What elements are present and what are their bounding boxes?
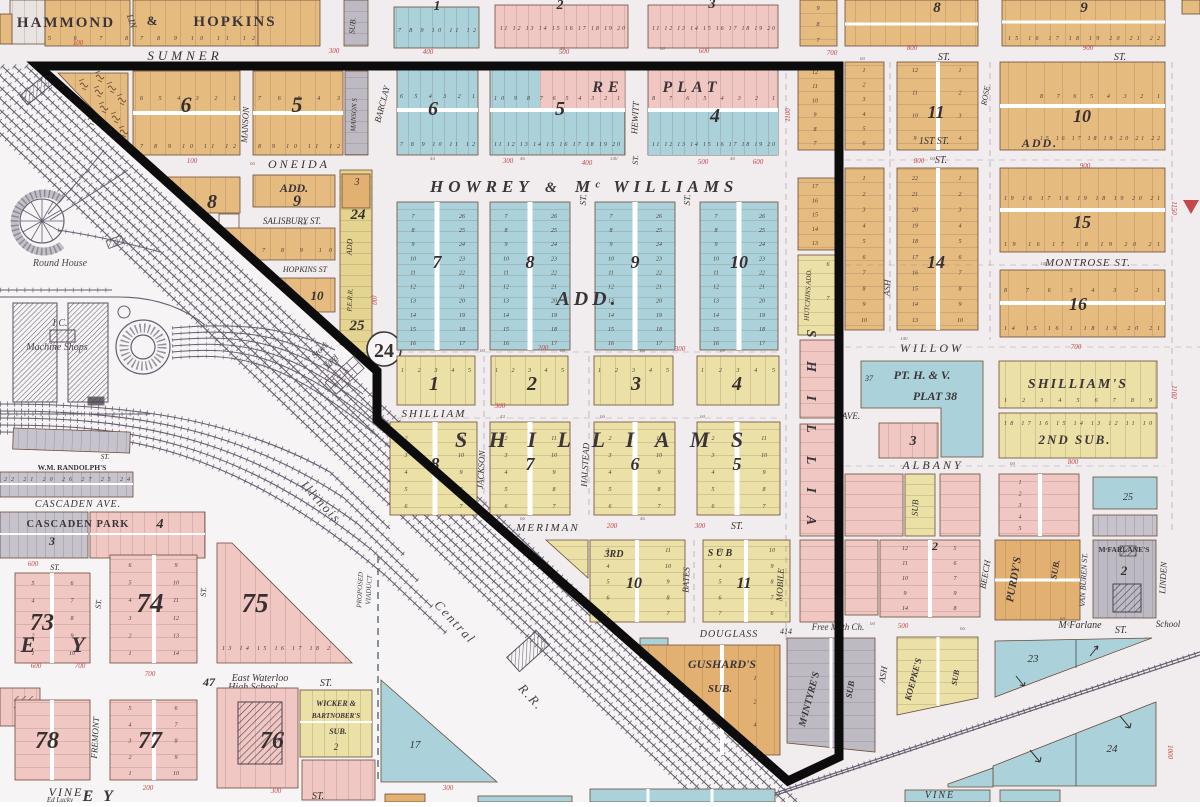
svg-text:140: 140 <box>610 157 618 162</box>
svg-text:3: 3 <box>404 453 408 459</box>
svg-text:16: 16 <box>1069 294 1087 314</box>
svg-text:60: 60 <box>930 157 936 162</box>
svg-text:60: 60 <box>860 57 866 62</box>
svg-text:WICKER &: WICKER & <box>316 699 357 708</box>
svg-text:12: 12 <box>503 285 509 291</box>
svg-text:60: 60 <box>1010 462 1016 467</box>
svg-text:74: 74 <box>137 588 164 618</box>
svg-text:46: 46 <box>560 47 566 52</box>
svg-text:E: E <box>20 632 36 657</box>
svg-text:700: 700 <box>75 662 86 670</box>
svg-text:ST.: ST. <box>731 521 743 532</box>
svg-text:24: 24 <box>551 241 557 248</box>
svg-text:14: 14 <box>173 650 179 657</box>
svg-text:8: 8 <box>933 0 941 16</box>
svg-text:10: 10 <box>713 256 719 262</box>
svg-text:10: 10 <box>957 318 963 324</box>
svg-text:15 16 17 18 19 20 21 22: 15 16 17 18 19 20 21 22 <box>1008 36 1160 42</box>
svg-text:15: 15 <box>503 327 509 333</box>
svg-text:400: 400 <box>582 159 593 167</box>
svg-text:11: 11 <box>503 270 509 276</box>
svg-text:16: 16 <box>410 341 416 347</box>
svg-text:6: 6 <box>71 581 74 587</box>
svg-text:6: 6 <box>959 255 962 261</box>
svg-text:5: 5 <box>405 487 408 493</box>
svg-text:2: 2 <box>959 91 962 97</box>
svg-text:21: 21 <box>912 192 918 198</box>
svg-text:8 7 6 5 4 3 2 1: 8 7 6 5 4 3 2 1 <box>1040 93 1160 100</box>
svg-text:6: 6 <box>428 98 438 120</box>
svg-text:66: 66 <box>600 415 606 420</box>
svg-text:11: 11 <box>902 561 908 567</box>
svg-text:66: 66 <box>520 517 526 522</box>
svg-text:SUMNER: SUMNER <box>147 48 222 63</box>
svg-text:6: 6 <box>405 504 408 510</box>
svg-text:S H I L L I A M S: S H I L L I A M S <box>455 427 751 452</box>
svg-text:17: 17 <box>759 341 766 347</box>
svg-text:5: 5 <box>863 239 866 245</box>
svg-text:1: 1 <box>863 68 866 74</box>
svg-text:BATES: BATES <box>680 566 691 593</box>
svg-text:11: 11 <box>410 270 416 276</box>
svg-text:8: 8 <box>814 127 817 133</box>
svg-text:13: 13 <box>812 241 818 247</box>
svg-text:MᶜFARLANE'S: MᶜFARLANE'S <box>1099 545 1150 554</box>
svg-text:16: 16 <box>503 341 509 347</box>
svg-text:SHILLIAM'S: SHILLIAM'S <box>1028 377 1128 392</box>
svg-text:23: 23 <box>759 256 765 262</box>
svg-text:6: 6 <box>505 504 508 510</box>
svg-text:HEWITT: HEWITT <box>629 100 641 135</box>
svg-text:15: 15 <box>713 327 719 333</box>
svg-text:5: 5 <box>733 454 742 474</box>
svg-text:11 12 13 14 15 16 17 18 19 20: 11 12 13 14 15 16 17 18 19 20 <box>494 141 620 148</box>
svg-text:1100: 1100 <box>784 108 792 122</box>
svg-text:15: 15 <box>912 286 918 292</box>
svg-text:5: 5 <box>555 98 565 120</box>
svg-text:9: 9 <box>763 470 766 476</box>
svg-text:9: 9 <box>667 580 670 586</box>
svg-text:13: 13 <box>410 299 416 305</box>
svg-text:600: 600 <box>753 158 764 166</box>
svg-text:5: 5 <box>129 706 132 712</box>
svg-text:10: 10 <box>861 318 867 324</box>
svg-text:11: 11 <box>761 436 767 442</box>
svg-text:8: 8 <box>763 487 766 493</box>
svg-text:13: 13 <box>503 299 509 305</box>
svg-text:6: 6 <box>631 454 640 474</box>
svg-text:6: 6 <box>609 504 612 510</box>
svg-text:46: 46 <box>520 157 526 162</box>
svg-text:8: 8 <box>553 487 556 493</box>
svg-text:4: 4 <box>1019 514 1022 521</box>
svg-text:24: 24 <box>374 340 394 362</box>
svg-text:14: 14 <box>410 312 416 319</box>
svg-text:12: 12 <box>912 68 918 74</box>
svg-text:13: 13 <box>912 318 918 324</box>
svg-text:2: 2 <box>556 0 564 13</box>
svg-text:12: 12 <box>410 285 416 291</box>
svg-text:100: 100 <box>73 39 84 47</box>
svg-text:1: 1 <box>863 176 866 182</box>
svg-text:10: 10 <box>665 564 671 570</box>
svg-text:8: 8 <box>954 606 957 612</box>
svg-text:12: 12 <box>173 616 179 622</box>
svg-text:25: 25 <box>656 228 662 234</box>
svg-text:11: 11 <box>927 102 944 122</box>
svg-text:18: 18 <box>656 327 662 333</box>
svg-text:46: 46 <box>640 517 646 522</box>
svg-text:10: 10 <box>912 113 918 119</box>
svg-text:12: 12 <box>713 285 719 291</box>
svg-text:22: 22 <box>656 270 662 276</box>
svg-text:2: 2 <box>129 755 132 761</box>
svg-text:22: 22 <box>912 176 918 182</box>
svg-text:11 12 13 14 15 16 17 18 19 20: 11 12 13 14 15 16 17 18 19 20 <box>500 25 625 32</box>
svg-text:3: 3 <box>1018 503 1022 509</box>
svg-text:9: 9 <box>460 470 463 476</box>
svg-text:10: 10 <box>812 98 818 104</box>
svg-text:26: 26 <box>551 214 557 220</box>
svg-text:22: 22 <box>551 270 557 276</box>
svg-text:3: 3 <box>128 616 132 622</box>
svg-text:10: 10 <box>458 453 464 459</box>
svg-text:4: 4 <box>129 597 132 604</box>
svg-text:4: 4 <box>754 722 757 729</box>
svg-text:10: 10 <box>626 575 642 592</box>
svg-text:60: 60 <box>700 415 706 420</box>
svg-text:S U B: S U B <box>708 548 733 559</box>
svg-text:22: 22 <box>459 270 465 276</box>
svg-text:25: 25 <box>349 318 366 334</box>
svg-text:14: 14 <box>812 226 818 233</box>
svg-text:300: 300 <box>694 522 706 530</box>
svg-text:23: 23 <box>1028 653 1040 665</box>
svg-text:5: 5 <box>32 581 35 587</box>
svg-text:140: 140 <box>1040 262 1048 267</box>
svg-text:Y: Y <box>103 788 114 802</box>
svg-text:ST.: ST. <box>50 563 60 572</box>
svg-text:2ND SUB.: 2ND SUB. <box>1037 432 1111 447</box>
svg-text:17: 17 <box>459 341 466 347</box>
svg-text:6: 6 <box>863 255 866 261</box>
svg-text:26: 26 <box>656 214 662 220</box>
svg-text:10: 10 <box>902 576 908 582</box>
svg-text:4: 4 <box>731 373 742 395</box>
svg-text:School: School <box>1156 619 1181 629</box>
svg-text:RE: RE <box>591 79 623 96</box>
svg-text:10: 10 <box>761 453 767 459</box>
svg-text:ONEIDA: ONEIDA <box>268 157 330 171</box>
svg-text:8: 8 <box>175 739 178 745</box>
svg-text:ST.: ST. <box>938 52 950 63</box>
svg-text:5: 5 <box>505 487 508 493</box>
svg-text:24: 24 <box>459 241 465 248</box>
svg-text:44: 44 <box>500 415 506 420</box>
svg-text:1150: 1150 <box>1170 201 1178 215</box>
svg-text:3: 3 <box>630 373 641 395</box>
svg-text:9: 9 <box>293 193 301 210</box>
svg-text:66: 66 <box>640 349 646 354</box>
svg-text:CASCADEN PARK: CASCADEN PARK <box>27 519 130 530</box>
svg-text:3: 3 <box>354 177 360 188</box>
svg-text:4: 4 <box>719 563 722 570</box>
svg-text:60: 60 <box>1060 617 1066 622</box>
svg-text:9: 9 <box>814 113 817 119</box>
svg-text:3: 3 <box>958 208 962 214</box>
svg-text:10: 10 <box>769 548 775 554</box>
svg-text:26: 26 <box>759 214 765 220</box>
svg-text:16: 16 <box>912 271 918 277</box>
svg-text:2: 2 <box>526 373 537 395</box>
svg-text:24: 24 <box>759 241 765 248</box>
svg-text:300: 300 <box>270 787 282 795</box>
svg-text:11: 11 <box>665 548 671 554</box>
svg-text:3: 3 <box>608 453 612 459</box>
svg-text:3: 3 <box>958 113 962 119</box>
svg-text:ST.: ST. <box>1114 52 1126 63</box>
svg-text:SALISBURY ST.: SALISBURY ST. <box>263 216 321 226</box>
svg-text:20: 20 <box>759 299 765 305</box>
svg-text:Ed Lucky: Ed Lucky <box>46 796 74 802</box>
svg-text:20: 20 <box>656 299 662 305</box>
svg-text:4: 4 <box>405 469 408 476</box>
svg-text:18: 18 <box>551 327 557 333</box>
svg-text:8: 8 <box>412 228 415 234</box>
svg-text:4: 4 <box>709 105 720 127</box>
svg-text:14: 14 <box>902 605 908 612</box>
svg-text:16: 16 <box>812 198 818 204</box>
svg-text:400: 400 <box>423 48 434 56</box>
svg-text:200: 200 <box>607 522 618 530</box>
svg-text:9: 9 <box>771 564 774 570</box>
svg-text:9: 9 <box>610 242 613 248</box>
svg-text:JACKSON: JACKSON <box>475 449 487 489</box>
svg-text:11: 11 <box>713 270 719 276</box>
svg-text:25: 25 <box>459 228 465 234</box>
svg-text:5: 5 <box>292 92 303 117</box>
svg-text:7: 7 <box>526 454 536 474</box>
svg-text:4: 4 <box>863 222 866 229</box>
svg-text:3: 3 <box>128 739 132 745</box>
svg-text:15: 15 <box>410 327 416 333</box>
svg-text:8: 8 <box>959 286 962 292</box>
svg-text:9: 9 <box>631 252 640 272</box>
svg-text:60: 60 <box>560 349 566 354</box>
svg-text:4: 4 <box>156 517 164 532</box>
svg-text:4: 4 <box>712 469 715 476</box>
svg-text:19: 19 <box>551 313 557 319</box>
svg-text:9: 9 <box>863 302 866 308</box>
svg-text:20: 20 <box>459 299 465 305</box>
svg-text:ST.: ST. <box>935 155 947 166</box>
svg-text:75: 75 <box>242 588 269 618</box>
svg-text:7: 7 <box>433 252 443 272</box>
svg-text:SUB.: SUB. <box>347 17 357 34</box>
svg-text:Machine Shops: Machine Shops <box>25 342 87 353</box>
svg-text:2: 2 <box>754 699 757 705</box>
svg-text:17: 17 <box>656 341 663 347</box>
svg-text:9: 9 <box>817 6 820 12</box>
svg-text:1: 1 <box>434 0 441 14</box>
svg-text:6: 6 <box>129 563 132 569</box>
svg-text:2: 2 <box>1019 492 1022 498</box>
svg-text:6: 6 <box>712 504 715 510</box>
svg-text:200: 200 <box>143 784 154 792</box>
svg-text:9: 9 <box>715 242 718 248</box>
svg-text:17: 17 <box>551 341 558 347</box>
svg-text:10: 10 <box>410 256 416 262</box>
svg-text:CASCADEN AVE.: CASCADEN AVE. <box>35 499 121 510</box>
svg-text:13: 13 <box>173 633 179 639</box>
svg-text:W.M. RANDOLPH'S: W.M. RANDOLPH'S <box>38 463 107 472</box>
svg-text:6: 6 <box>863 141 866 147</box>
svg-text:600: 600 <box>31 662 42 670</box>
svg-text:ST.: ST. <box>682 194 693 206</box>
svg-text:3: 3 <box>862 208 866 214</box>
svg-text:60: 60 <box>870 622 876 627</box>
svg-text:ST.: ST. <box>101 453 110 461</box>
svg-text:ALBANY: ALBANY <box>901 458 963 472</box>
svg-text:14: 14 <box>912 301 918 308</box>
svg-text:47: 47 <box>202 675 216 689</box>
svg-text:18: 18 <box>459 327 465 333</box>
svg-text:6: 6 <box>175 706 178 712</box>
svg-text:9: 9 <box>954 591 957 597</box>
svg-text:60: 60 <box>720 349 726 354</box>
svg-text:17: 17 <box>410 739 422 751</box>
svg-text:15: 15 <box>608 327 614 333</box>
svg-text:1: 1 <box>754 676 757 682</box>
svg-text:14: 14 <box>927 252 945 272</box>
svg-text:ADD: ADD <box>345 238 355 256</box>
svg-text:MOBILE: MOBILE <box>774 568 786 603</box>
svg-text:1: 1 <box>429 373 439 395</box>
svg-text:10: 10 <box>656 453 662 459</box>
svg-text:8: 8 <box>610 228 613 234</box>
svg-text:800: 800 <box>914 157 925 165</box>
svg-text:BARTNOBER'S: BARTNOBER'S <box>311 712 360 720</box>
svg-text:1: 1 <box>129 771 132 777</box>
svg-text:17: 17 <box>912 255 919 261</box>
svg-text:5: 5 <box>719 580 722 586</box>
svg-text:10: 10 <box>311 288 325 303</box>
svg-text:6: 6 <box>954 561 957 567</box>
svg-text:3: 3 <box>48 534 55 548</box>
svg-text:700: 700 <box>145 670 156 678</box>
svg-text:21: 21 <box>656 285 662 291</box>
svg-text:ST.: ST. <box>320 678 332 689</box>
svg-text:E: E <box>82 788 94 802</box>
svg-text:ASH: ASH <box>882 279 893 297</box>
svg-text:8: 8 <box>505 228 508 234</box>
svg-text:10: 10 <box>1073 106 1091 126</box>
svg-text:1000: 1000 <box>1166 745 1174 760</box>
svg-text:21: 21 <box>759 285 765 291</box>
svg-text:(00: (00 <box>370 295 378 305</box>
svg-text:DOUGLASS: DOUGLASS <box>699 629 759 640</box>
svg-text:76: 76 <box>260 728 284 754</box>
svg-text:5: 5 <box>954 546 957 552</box>
svg-text:5: 5 <box>129 581 132 587</box>
svg-text:18: 18 <box>759 327 765 333</box>
svg-text:800: 800 <box>907 44 918 52</box>
svg-text:6: 6 <box>699 726 702 732</box>
svg-text:P.E.R.R.: P.E.R.R. <box>345 288 354 313</box>
svg-text:4: 4 <box>607 563 610 570</box>
svg-text:200: 200 <box>538 344 549 352</box>
svg-text:10: 10 <box>730 252 748 272</box>
svg-text:5: 5 <box>1019 526 1022 532</box>
svg-text:8: 8 <box>715 228 718 234</box>
svg-text:44: 44 <box>430 157 436 162</box>
svg-text:19: 19 <box>912 223 918 229</box>
svg-text:11: 11 <box>736 575 751 592</box>
svg-text:5: 5 <box>959 239 962 245</box>
svg-text:1100: 1100 <box>1170 385 1178 399</box>
svg-text:1: 1 <box>959 176 962 182</box>
svg-text:78: 78 <box>35 728 59 754</box>
svg-text:19: 19 <box>459 313 465 319</box>
svg-text:WILLOW: WILLOW <box>900 341 964 355</box>
svg-text:140: 140 <box>300 222 308 227</box>
svg-text:24: 24 <box>656 241 662 248</box>
svg-text:15: 15 <box>1073 212 1091 232</box>
svg-text:1: 1 <box>959 68 962 74</box>
svg-text:2: 2 <box>863 83 866 89</box>
svg-text:25: 25 <box>551 228 557 234</box>
svg-text:11 12 13 14 15 16 17 18 19 20: 11 12 13 14 15 16 17 18 19 20 <box>652 25 775 32</box>
svg-text:25: 25 <box>759 228 765 234</box>
svg-text:9: 9 <box>904 591 907 597</box>
svg-text:11: 11 <box>173 598 179 604</box>
svg-text:9: 9 <box>959 302 962 308</box>
svg-text:100: 100 <box>187 157 198 165</box>
svg-text:8: 8 <box>207 191 217 213</box>
svg-text:VINE: VINE <box>925 790 955 801</box>
svg-text:13: 13 <box>713 299 719 305</box>
svg-text:SUB.: SUB. <box>329 727 347 736</box>
svg-text:14: 14 <box>608 312 614 319</box>
svg-text:LINDEN: LINDEN <box>1157 561 1169 595</box>
svg-text:9: 9 <box>175 755 178 761</box>
svg-text:HOPKINS ST: HOPKINS ST <box>282 265 328 274</box>
svg-text:ADD.: ADD. <box>1021 136 1058 150</box>
svg-text:66: 66 <box>960 627 966 632</box>
svg-text:10: 10 <box>503 256 509 262</box>
svg-text:25: 25 <box>1123 492 1133 503</box>
svg-text:ST.: ST. <box>312 791 324 802</box>
svg-text:8: 8 <box>817 22 820 28</box>
svg-text:10: 10 <box>173 771 179 777</box>
svg-text:MERIMAN: MERIMAN <box>515 522 579 534</box>
svg-text:I.C.: I.C. <box>52 318 68 329</box>
svg-text:17: 17 <box>812 184 819 190</box>
svg-text:3: 3 <box>504 453 508 459</box>
svg-text:5: 5 <box>712 487 715 493</box>
svg-text:6: 6 <box>181 92 192 117</box>
svg-text:60: 60 <box>480 349 486 354</box>
svg-text:ST.: ST. <box>631 155 641 165</box>
svg-text:300: 300 <box>502 157 514 165</box>
svg-text:500: 500 <box>698 158 709 166</box>
svg-text:900: 900 <box>1083 44 1094 52</box>
svg-text:18: 18 <box>912 239 918 245</box>
svg-text:5: 5 <box>609 487 612 493</box>
svg-text:6: 6 <box>719 595 722 601</box>
svg-text:ADD.: ADD. <box>554 288 619 310</box>
svg-text:10: 10 <box>173 581 179 587</box>
